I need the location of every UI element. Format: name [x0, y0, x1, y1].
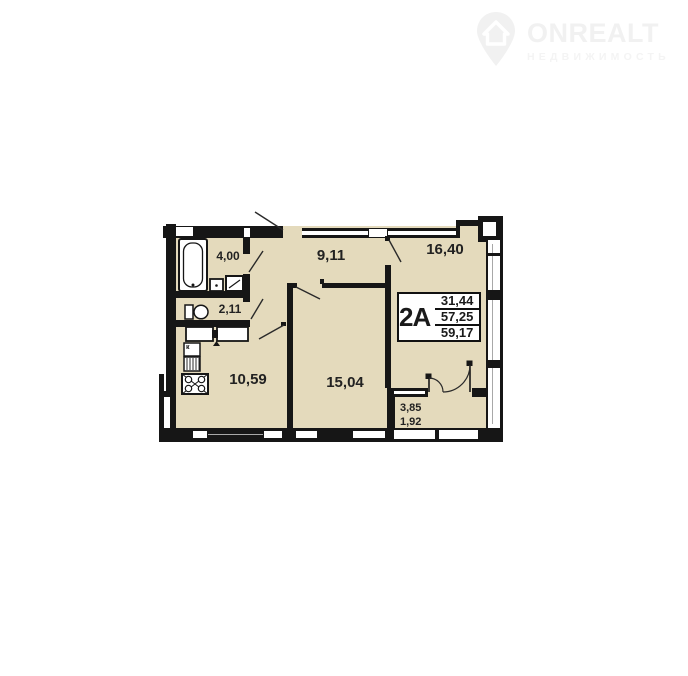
page: ONREALT НЕДВИЖИМОСТЬ: [0, 0, 688, 676]
unit-info-box: 2A 31,44 57,25 59,17: [397, 292, 481, 342]
bathtub: [179, 239, 207, 291]
label-bedroom-area: 15,04: [315, 374, 375, 391]
unit-areas: 31,44 57,25 59,17: [435, 294, 479, 340]
bedroom-door-swing-line: [296, 287, 320, 299]
fridge-marker-label: к: [186, 344, 190, 351]
washing-machine: [226, 276, 243, 291]
label-hallway-area: 9,11: [304, 247, 358, 264]
kitchen-opening-swing-line: [259, 325, 284, 339]
unit-name: 2A: [399, 302, 430, 333]
unit-living-area: 31,44: [435, 294, 479, 310]
label-bathroom-area: 4,00: [204, 249, 252, 263]
label-balcony-full-area: 3,85: [400, 402, 440, 414]
unit-usable-area: 57,25: [435, 310, 479, 326]
entry-door-swing-line: [255, 212, 283, 230]
label-kitchen-area: 10,59: [218, 371, 278, 388]
label-livingroom-area: 16,40: [416, 241, 474, 258]
bathroom-sink: [210, 279, 223, 291]
plan-linework: [0, 0, 688, 676]
livingroom-door-swing-line: [389, 240, 401, 262]
balcony-door: [426, 361, 473, 393]
stove: [182, 374, 208, 394]
label-wc-area: 2,11: [206, 302, 254, 316]
dish-dryer: [184, 357, 200, 371]
toilet: [185, 305, 208, 319]
floor-plan: к 4,00 2,11 9,11 16,40 10,59 15,04 3,85 …: [0, 0, 688, 676]
unit-total-area: 59,17: [435, 326, 479, 340]
label-balcony-reduced-area: 1,92: [400, 416, 440, 428]
